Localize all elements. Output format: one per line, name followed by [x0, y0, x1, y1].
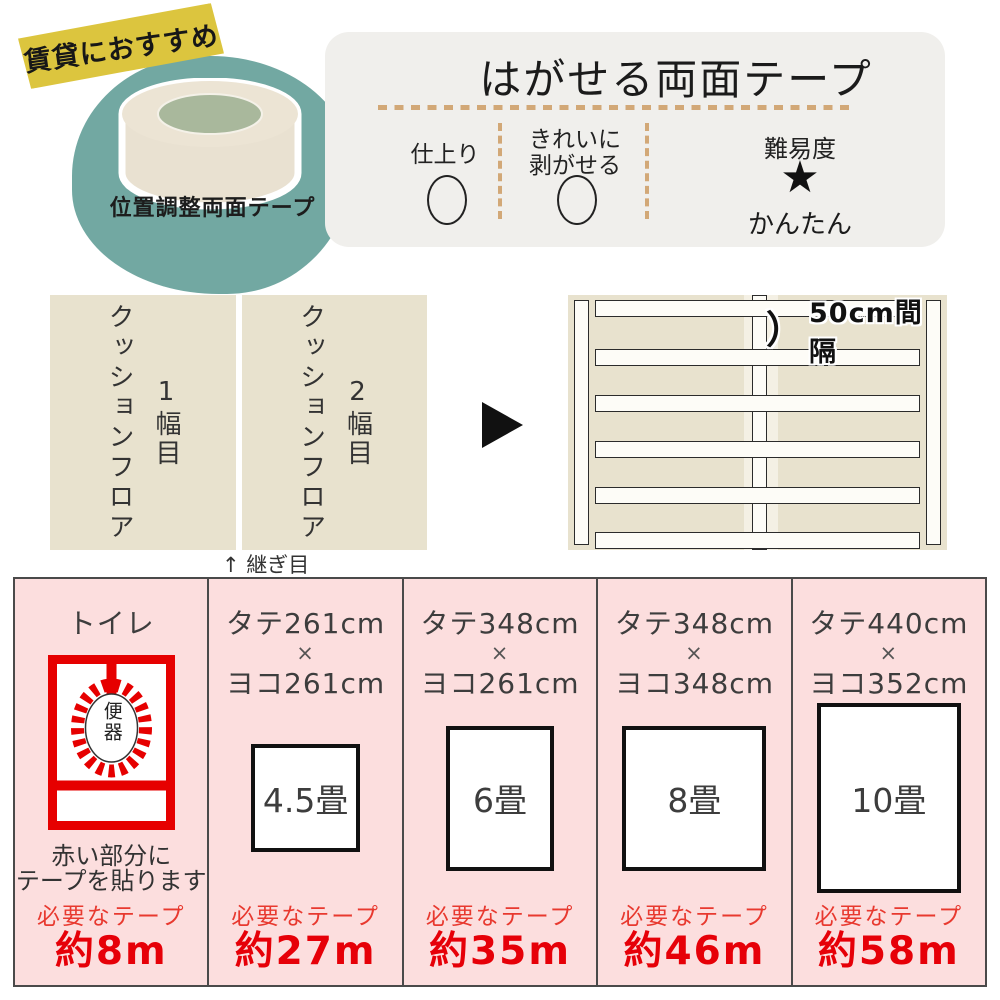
tape-feature-panel: はがせる両面テープ 仕上り きれいに 剥がせる 難易度 ★ かんたん: [325, 32, 945, 247]
seam-label: 継ぎ目: [246, 553, 309, 577]
sheet-1-text: クッションフロア: [101, 303, 138, 543]
product-label: 位置調整両面テープ: [105, 190, 320, 222]
sheet-1-width-label: 1幅目: [148, 377, 185, 468]
room-box-area: 8畳: [622, 699, 766, 897]
flooring-sheet-1: クッションフロア 1幅目: [50, 295, 236, 550]
multiply-sign: ×: [226, 639, 385, 668]
seam-note: ↑ 継ぎ目: [222, 549, 309, 579]
column-header: タテ261cm × ヨコ261cm: [226, 608, 385, 699]
room-box-area: 10畳: [817, 699, 961, 897]
required-tape: 必要なテープ 約8m: [37, 897, 186, 973]
required-tape-label: 必要なテープ: [426, 897, 575, 931]
seam-arrow-icon: ↑: [222, 553, 240, 577]
size-width: ヨコ261cm: [420, 668, 579, 699]
tatami-label: 10畳: [851, 774, 926, 822]
note-line-1: 赤い部分に: [16, 844, 207, 869]
tape-strip-horizontal: [595, 441, 920, 458]
required-tape-label: 必要なテープ: [815, 897, 964, 931]
required-tape: 必要なテープ 約46m: [620, 897, 769, 973]
required-tape-value: 約58m: [815, 931, 964, 973]
dashed-divider-horizontal: [378, 105, 853, 110]
toilet-diagram: 便器: [48, 655, 175, 830]
required-tape-label: 必要なテープ: [231, 897, 380, 931]
toilet-bowl-label: 便器: [99, 701, 126, 743]
required-tape: 必要なテープ 約27m: [231, 897, 380, 973]
tape-instruction-note: 赤い部分に テープを貼ります: [16, 844, 207, 894]
flooring-sheet-2: クッションフロア 2幅目: [242, 295, 427, 550]
required-tape-value: 約27m: [231, 931, 380, 973]
tape-strip-vertical-left: [574, 300, 589, 545]
star-rating-icon: ★: [710, 156, 890, 200]
required-tape: 必要なテープ 約35m: [426, 897, 575, 973]
room-size-box: 4.5畳: [251, 744, 360, 852]
tape-strip-horizontal: [595, 487, 920, 504]
sheet-2-text: クッションフロア: [293, 303, 330, 543]
required-tape-label: 必要なテープ: [620, 897, 769, 931]
multiply-sign: ×: [420, 639, 579, 668]
required-tape-label: 必要なテープ: [37, 897, 186, 931]
room-size-box: 8畳: [622, 726, 766, 871]
tape-requirements-table: トイレ 便器 赤い部分に テープを貼ります 必要なテープ 約8m: [13, 577, 987, 987]
tatami-label: 8畳: [667, 774, 721, 822]
tatami-label: 4.5畳: [263, 774, 348, 822]
required-tape: 必要なテープ 約58m: [815, 897, 964, 973]
multiply-sign: ×: [615, 639, 774, 668]
table-column-6jo: タテ348cm × ヨコ261cm 6畳 必要なテープ 約35m: [402, 579, 596, 985]
size-width: ヨコ348cm: [615, 668, 774, 699]
table-column-4-5jo: タテ261cm × ヨコ261cm 4.5畳 必要なテープ 約27m: [207, 579, 401, 985]
tatami-label: 6畳: [473, 774, 527, 822]
column-header: タテ440cm × ヨコ352cm: [809, 608, 968, 699]
spacing-text: 50cm間隔: [809, 291, 947, 369]
arrow-right-icon: [482, 402, 523, 448]
panel-title: はがせる両面テープ: [325, 46, 945, 107]
sheet-2-width-label: 2幅目: [340, 377, 377, 468]
table-column-toilet: トイレ 便器 赤い部分に テープを貼ります 必要なテープ 約8m: [15, 579, 207, 985]
tape-strip-vertical-center: [752, 295, 767, 550]
tape-roll-core: [158, 94, 262, 134]
required-tape-value: 約46m: [620, 931, 769, 973]
size-height: タテ348cm: [420, 608, 579, 639]
circle-rating-icon: [557, 175, 597, 225]
note-line-2: テープを貼ります: [16, 869, 207, 894]
multiply-sign: ×: [809, 639, 968, 668]
table-column-8jo: タテ348cm × ヨコ348cm 8畳 必要なテープ 約46m: [596, 579, 790, 985]
room-size-box: 6畳: [446, 726, 554, 871]
spacing-paren: ）: [766, 311, 804, 349]
required-tape-value: 約35m: [426, 931, 575, 973]
tape-strip-horizontal: [595, 395, 920, 412]
room-box-area: 4.5畳: [251, 699, 360, 897]
difficulty-value: かんたん: [710, 204, 890, 241]
column-header: タテ348cm × ヨコ348cm: [615, 608, 774, 699]
tape-strip-horizontal: [595, 532, 920, 549]
circle-rating-icon: [427, 175, 467, 225]
size-height: タテ440cm: [809, 608, 968, 639]
size-height: タテ261cm: [226, 608, 385, 639]
tape-layout-diagram: ） 50cm間隔: [568, 295, 947, 550]
required-tape-value: 約8m: [37, 931, 186, 973]
spacing-annotation: ） 50cm間隔: [766, 307, 947, 353]
room-size-box: 10畳: [817, 703, 961, 893]
size-height: タテ348cm: [615, 608, 774, 639]
column-header: トイレ: [68, 608, 155, 639]
size-width: ヨコ261cm: [226, 668, 385, 699]
table-column-10jo: タテ440cm × ヨコ352cm 10畳 必要なテープ 約58m: [791, 579, 985, 985]
column-header: タテ348cm × ヨコ261cm: [420, 608, 579, 699]
size-width: ヨコ352cm: [809, 668, 968, 699]
infographic-canvas: 位置調整両面テープ 賃貸におすすめ はがせる両面テープ 仕上り きれいに 剥がせ…: [0, 0, 1000, 1000]
room-box-area: 6畳: [446, 699, 554, 897]
